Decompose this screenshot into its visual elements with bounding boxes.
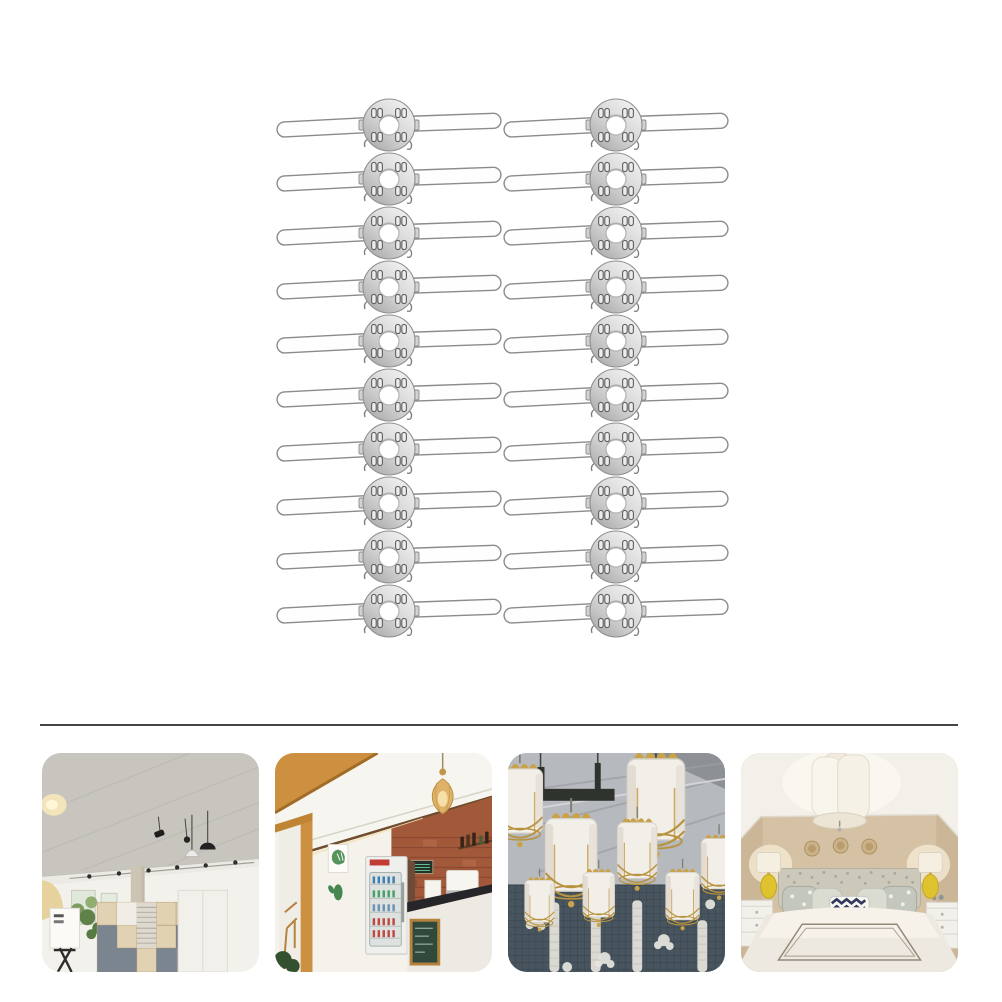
product-image [0, 0, 1002, 1002]
concrete-ceiling [42, 753, 259, 885]
divider-line [40, 724, 958, 726]
product-grid-svg [0, 0, 1002, 700]
product-item-clip [277, 477, 501, 529]
bed [741, 907, 958, 972]
product-item-clip [277, 261, 501, 313]
gallery-photo-cafe-interior [275, 753, 492, 972]
product-item-clip [277, 99, 501, 151]
product-item-clip [277, 423, 501, 475]
cube-shelving [97, 890, 227, 972]
product-item-clip [277, 207, 501, 259]
product-item-clip [277, 369, 501, 421]
doorway [275, 813, 312, 972]
product-item-clip [504, 531, 728, 583]
product-item-clip [504, 261, 728, 313]
product-item-clip [504, 585, 728, 637]
product-item-clip [504, 315, 728, 367]
product-item-clip [504, 423, 728, 475]
gallery-photo-lantern-display [508, 753, 725, 972]
clip-items [277, 99, 728, 637]
product-item-clip [504, 369, 728, 421]
product-item-clip [277, 531, 501, 583]
gallery-photo-office-interior [42, 753, 259, 972]
product-item-clip [504, 477, 728, 529]
product-item-clip [277, 315, 501, 367]
thumbnail-row [42, 753, 958, 972]
product-item-clip [504, 99, 728, 151]
product-item-clip [504, 207, 728, 259]
product-item-clip [277, 585, 501, 637]
gallery-photo-bedroom-interior [741, 753, 958, 972]
product-item-clip [504, 153, 728, 205]
product-item-clip [277, 153, 501, 205]
